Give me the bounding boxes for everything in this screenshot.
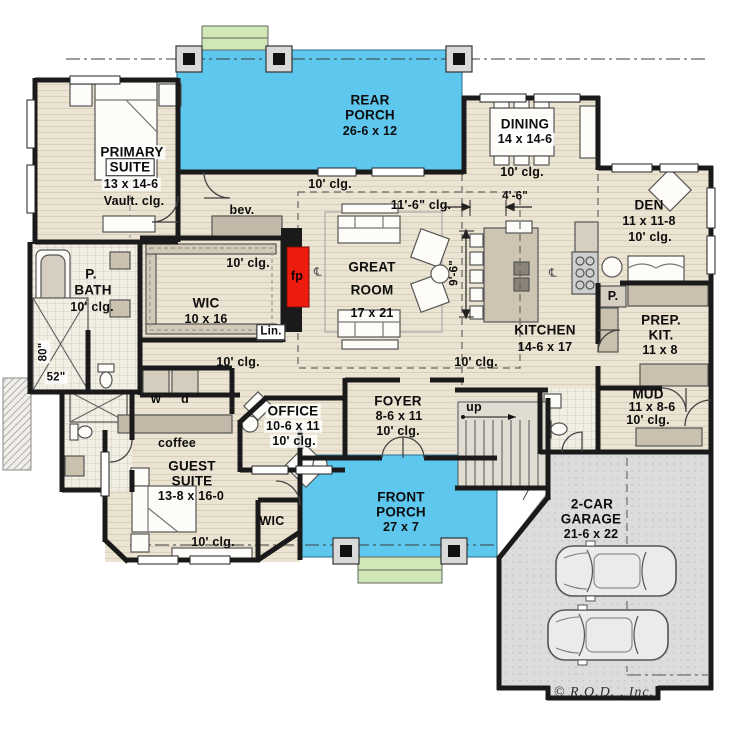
dining-label: DINING xyxy=(499,117,551,131)
p-bath-label: BATH xyxy=(74,283,111,297)
office-label: OFFICE xyxy=(266,404,321,418)
hutch-cabinet xyxy=(580,106,596,158)
garage-label: 2-CAR xyxy=(571,497,613,511)
dim-4-6: 4'-6" xyxy=(502,191,528,203)
kitchen-ceiling: 10' clg. xyxy=(454,356,497,369)
dining-dims: 14 x 14-6 xyxy=(496,133,555,146)
primary-suite-dims: 13 x 14-6 xyxy=(102,178,161,191)
centerline-symbol: ℄ xyxy=(549,267,557,279)
console-table xyxy=(342,204,398,213)
counter xyxy=(575,222,598,252)
ceiling-note: 10' clg. xyxy=(308,178,351,191)
dining-ceiling: 10' clg. xyxy=(500,166,543,179)
guest-suite-dims: 13-8 x 16-0 xyxy=(158,490,224,503)
wic-label: WIC xyxy=(193,296,220,310)
mud-ceiling: 10' clg. xyxy=(626,414,669,427)
coffee-label: coffee xyxy=(158,437,196,450)
great-room-label: ROOM xyxy=(351,283,394,297)
shower-length: 52" xyxy=(45,372,68,384)
guest-wic-label: WIC xyxy=(260,515,285,528)
linen-label: Lin. xyxy=(256,324,285,340)
den-dims: 11 x 11-8 xyxy=(622,215,675,228)
mud-label: MUD xyxy=(632,387,663,401)
garage-dims: 21-6 x 22 xyxy=(564,528,619,541)
console-table xyxy=(342,340,398,349)
counter xyxy=(628,284,708,306)
dryer-label: d xyxy=(181,393,189,406)
dryer xyxy=(172,370,198,394)
kitchen-dims: 14-6 x 17 xyxy=(518,341,573,354)
office-ceiling: 10' clg. xyxy=(270,435,317,448)
prep-kitchen-dims: 11 x 8 xyxy=(642,344,677,357)
nightstand xyxy=(131,534,149,552)
den-ceiling: 10' clg. xyxy=(628,231,671,244)
guest-suite-label: GUEST xyxy=(168,459,216,473)
toilet xyxy=(70,424,78,440)
ceiling-note: 10' clg. xyxy=(216,356,259,369)
rear-porch-label: REAR xyxy=(350,93,389,107)
p-bath-ceiling: 10' clg. xyxy=(70,301,113,314)
bev-label: bev. xyxy=(230,204,255,217)
front-porch-label: PORCH xyxy=(376,505,426,519)
rear-porch-dims: 26-6 x 12 xyxy=(343,125,398,138)
centerline-symbol: ℄ xyxy=(314,266,322,278)
foyer-dims: 8-6 x 11 xyxy=(376,410,423,423)
foyer-label: FOYER xyxy=(374,394,422,408)
garage-label: GARAGE xyxy=(561,512,621,526)
bev-counter xyxy=(212,216,282,238)
wic-ceiling: 10' clg. xyxy=(226,257,269,270)
fireplace-label: fp xyxy=(291,270,303,283)
bench xyxy=(103,216,155,232)
primary-suite-label: PRIMARY xyxy=(98,145,165,159)
p-bath-label: P. xyxy=(85,267,96,281)
pantry-label: P. xyxy=(608,290,619,303)
counter xyxy=(640,364,708,386)
kitchen-label: KITCHEN xyxy=(514,323,575,337)
washer xyxy=(143,370,169,394)
mud-bench xyxy=(636,428,702,446)
copyright-text: © R.O.D. , Inc. xyxy=(554,686,654,700)
island-sink xyxy=(506,221,532,233)
great-room-label: GREAT xyxy=(348,260,395,274)
great-room-ceiling: 11'-6" clg. xyxy=(391,199,451,212)
prep-kitchen-label: PREP. xyxy=(641,313,681,327)
nightstand xyxy=(70,84,92,106)
stairs xyxy=(458,402,546,488)
rear-porch-label: PORCH xyxy=(345,108,395,122)
guest-suite-ceiling: 10' clg. xyxy=(191,536,234,549)
wic-dims: 10 x 16 xyxy=(184,313,227,326)
up-label: up xyxy=(466,401,482,414)
coffee-counter xyxy=(118,415,232,433)
dim-9-6: 9'-6" xyxy=(449,260,461,286)
vanity-sink xyxy=(65,456,84,476)
office-dims: 10-6 x 11 xyxy=(264,420,322,433)
front-porch-label: FRONT xyxy=(377,490,425,504)
floor-plan: REAR PORCH 26-6 x 12 10' clg. DINING 14 … xyxy=(0,0,736,736)
kitchen-island xyxy=(484,228,538,322)
great-room-dims: 17 x 21 xyxy=(350,307,393,320)
primary-suite-ceiling: Vault. clg. xyxy=(104,195,165,208)
sofa xyxy=(338,216,400,243)
mud-dims: 11 x 8-6 xyxy=(629,401,676,414)
toilet xyxy=(551,423,567,435)
side-table xyxy=(431,265,449,283)
primary-suite-label: SUITE xyxy=(106,158,155,176)
toilet xyxy=(100,372,112,388)
shower-width: 80" xyxy=(38,341,50,364)
prep-kitchen-label: KIT. xyxy=(649,328,674,342)
vanity-sink xyxy=(110,252,130,269)
washer-label: w xyxy=(151,393,161,406)
foyer-ceiling: 10' clg. xyxy=(376,425,419,438)
guest-suite-label: SUITE xyxy=(172,474,213,488)
toilet xyxy=(98,364,114,372)
den-label: DEN xyxy=(634,198,663,212)
toilet xyxy=(78,426,92,438)
front-porch-dims: 27 x 7 xyxy=(383,521,419,534)
round-table xyxy=(602,257,622,277)
